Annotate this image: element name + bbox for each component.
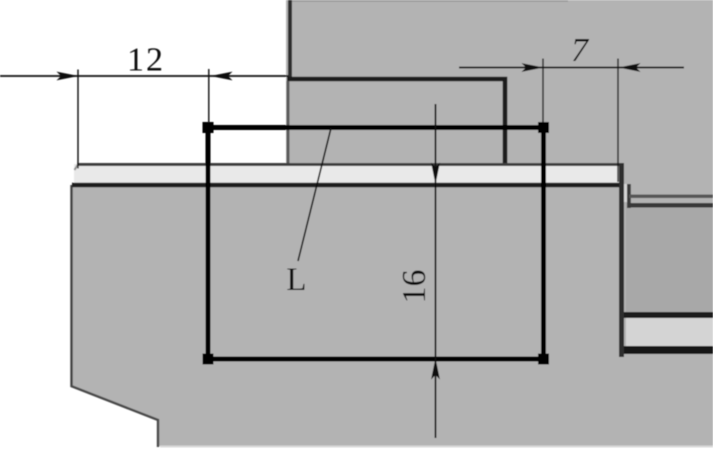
svg-text:12: 12 [127, 42, 165, 79]
svg-text:16: 16 [396, 270, 433, 304]
svg-text:7: 7 [571, 32, 590, 69]
svg-text:L: L [286, 262, 306, 298]
